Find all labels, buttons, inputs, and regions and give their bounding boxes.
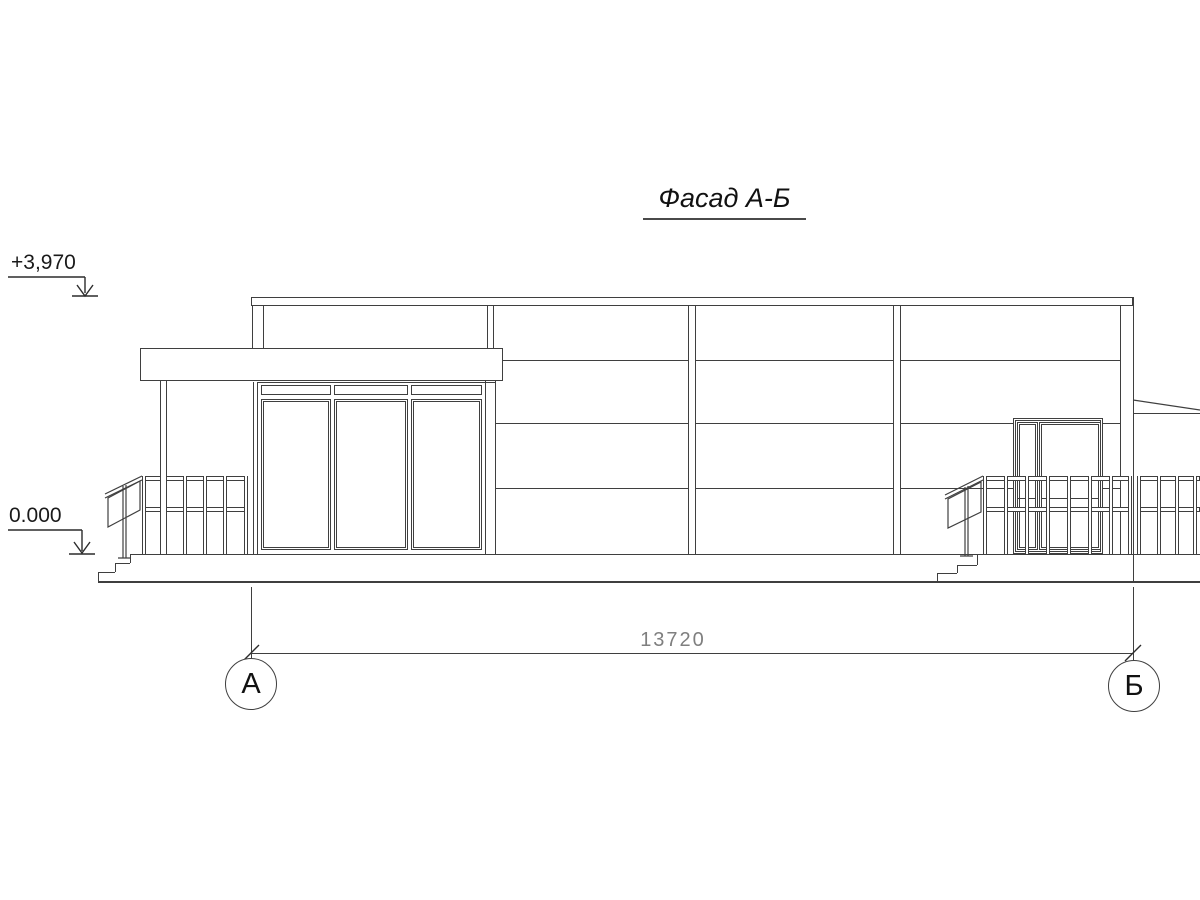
railing-post: [1137, 476, 1141, 554]
pilaster: [893, 306, 901, 554]
railing-post: [1109, 476, 1113, 554]
storefront-transom: [334, 385, 408, 395]
canopy-slab: [140, 348, 503, 381]
railing-post: [1175, 476, 1179, 554]
storefront-glass-panel: [261, 399, 331, 550]
plinth-base-line: [98, 581, 1200, 583]
step-riser: [937, 573, 938, 581]
axis-extension-line: [251, 587, 252, 658]
axis-extension-line: [1133, 587, 1134, 660]
wall-corner-line: [1120, 306, 1121, 554]
step-tread: [957, 565, 977, 566]
railing-top-rail: [1137, 476, 1200, 481]
annex-roof-line: [1133, 413, 1200, 414]
elevation-arrow-bottom: [8, 530, 95, 554]
dimension-value: 13720: [613, 629, 733, 652]
corner-post-upper: [487, 306, 488, 348]
storefront-transom: [261, 385, 331, 395]
annex-roof-slope: [1133, 400, 1200, 410]
axis-bubble-b: Б: [1108, 660, 1160, 712]
railing-post: [1025, 476, 1029, 554]
railing-mid-rail: [1137, 507, 1200, 512]
axis-bubble-a: А: [225, 658, 277, 710]
wall-corner-line: [1133, 297, 1134, 583]
storefront-head-line: [253, 382, 495, 383]
elevation-label-top: +3,970: [11, 251, 76, 275]
railing-post: [203, 476, 207, 554]
parapet-support-post: [252, 306, 253, 348]
railing-post: [983, 476, 987, 554]
step-tread: [98, 572, 115, 573]
corner-post-upper: [493, 306, 494, 348]
siding-line: [503, 360, 1120, 361]
step-riser: [977, 554, 978, 565]
step-riser: [957, 565, 958, 573]
railing-post: [1067, 476, 1071, 554]
railing-post: [223, 476, 227, 554]
dimension-line: [251, 653, 1133, 654]
railing-post: [183, 476, 187, 554]
elevation-arrow-top: [8, 277, 98, 296]
parapet-band: [251, 297, 1133, 306]
storefront-glass-panel: [411, 399, 482, 550]
railing-post: [1046, 476, 1050, 554]
floor-line: [130, 554, 1200, 555]
step-tread: [937, 573, 957, 574]
canopy-column: [160, 381, 167, 554]
elevation-label-bottom: 0.000: [9, 504, 62, 528]
railing-post: [244, 476, 248, 554]
storefront-glass-panel: [334, 399, 408, 550]
railing-mid-rail: [142, 507, 247, 512]
storefront-jamb: [253, 382, 258, 554]
railing-post: [142, 476, 146, 554]
step-riser: [115, 563, 116, 572]
ramp-handrail-left: [105, 476, 142, 498]
railing-post: [1157, 476, 1161, 554]
wall-corner-board: [485, 380, 496, 554]
railing-post: [1128, 476, 1132, 554]
ramp-post-right: [960, 486, 973, 556]
railing-top-rail: [142, 476, 247, 481]
facade-drawing-canvas: Фасад А-Б +3,970 0.000 13720 А Б: [0, 0, 1200, 900]
pilaster: [688, 306, 696, 554]
railing-post: [1193, 476, 1197, 554]
step-riser: [130, 554, 131, 563]
railing-post: [1004, 476, 1008, 554]
step-riser: [98, 572, 99, 581]
storefront-transom: [411, 385, 482, 395]
drawing-title: Фасад А-Б: [643, 183, 806, 220]
ramp-panel-left: [108, 481, 140, 527]
railing-post: [1088, 476, 1092, 554]
step-tread: [115, 563, 130, 564]
parapet-support-post: [263, 306, 264, 348]
ramp-post-left: [118, 485, 131, 558]
